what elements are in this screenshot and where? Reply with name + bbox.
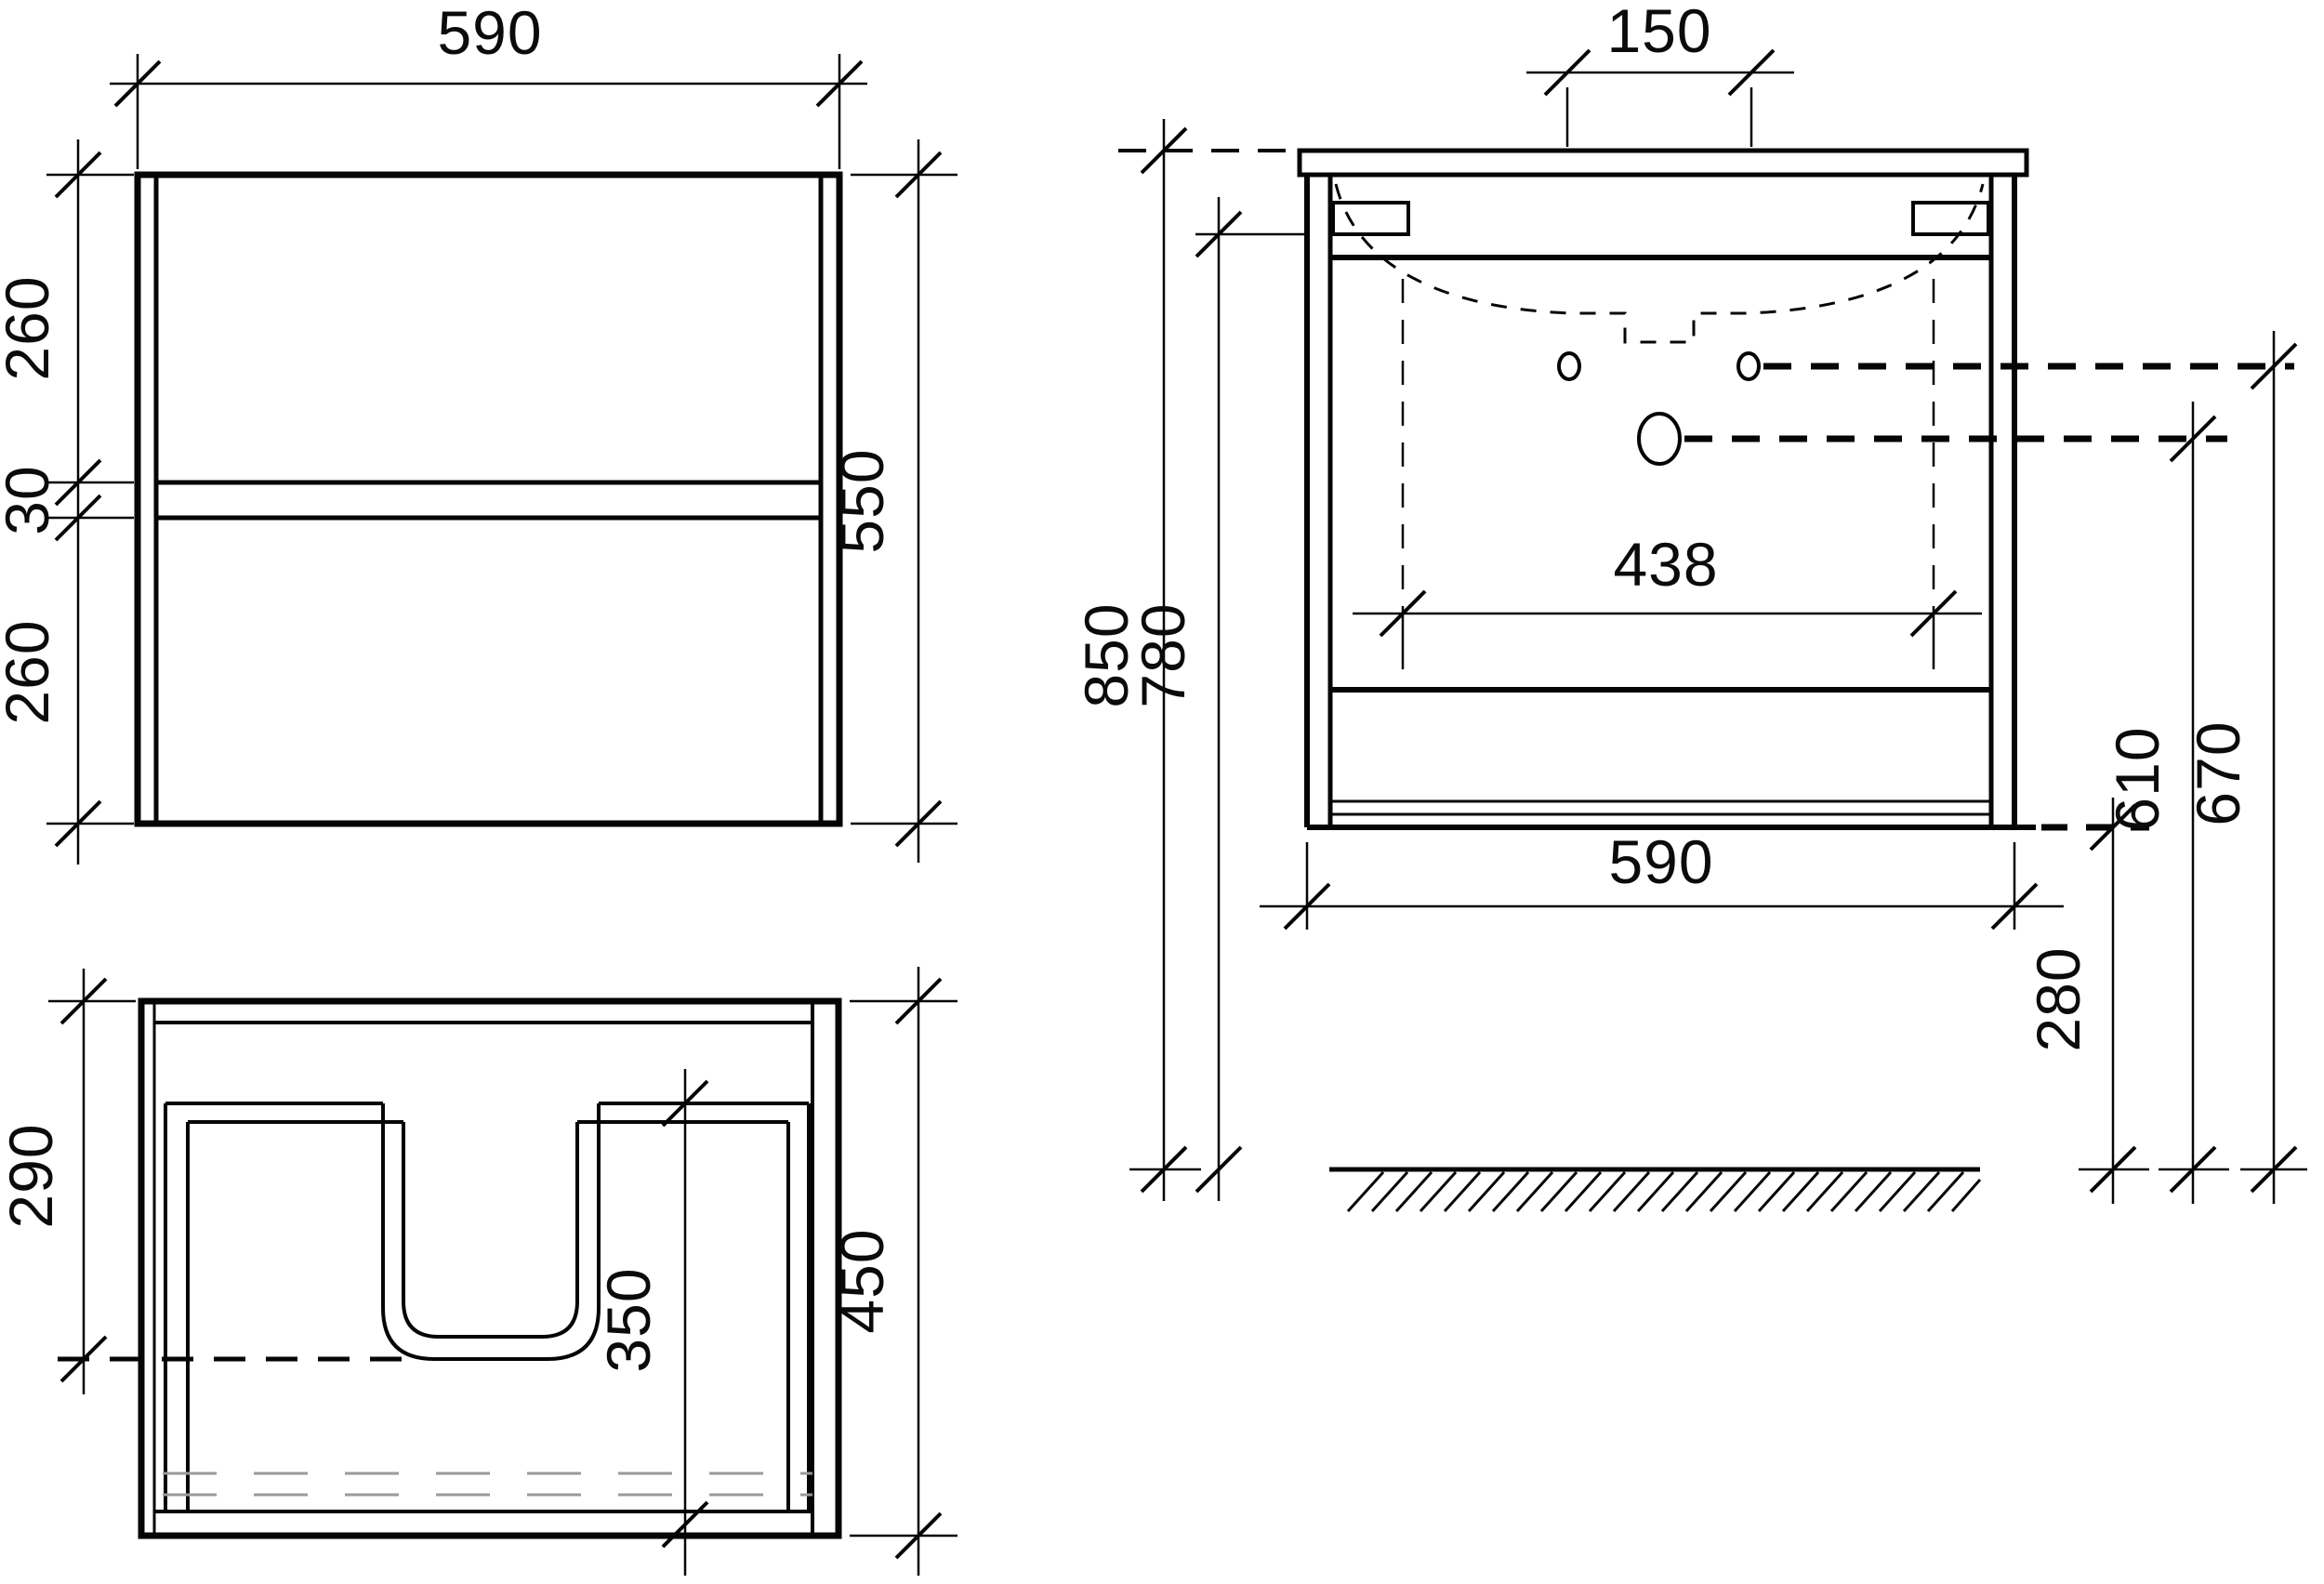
technical-drawing-canvas: 590 260 30 260 550 <box>0 0 2324 1584</box>
dim-label-tap-spacing: 150 <box>1606 0 1711 65</box>
dim-label-plan-depth-left: 290 <box>0 1123 65 1228</box>
dim-label-plan-depth-right: 450 <box>827 1228 896 1333</box>
dim-label-tap-height: 670 <box>2184 720 2252 825</box>
drawing-background <box>0 0 2324 1584</box>
dim-label-under-top-height: 780 <box>1129 602 1197 707</box>
dim-label-front-seg-top: 260 <box>0 275 61 380</box>
dim-label-front-seg-bottom: 260 <box>0 619 61 724</box>
dim-label-floor-clearance: 280 <box>2024 946 2093 1051</box>
dim-label-drain-height: 610 <box>2103 726 2172 831</box>
dim-label-front-width: 590 <box>437 0 542 67</box>
dim-label-bracket-spacing: 438 <box>1613 530 1718 599</box>
dim-label-front-seg-mid: 30 <box>0 465 61 535</box>
dim-label-elev-width: 590 <box>1608 827 1713 896</box>
dim-label-front-height: 550 <box>827 448 896 553</box>
dim-label-plan-cutout: 350 <box>594 1267 663 1372</box>
